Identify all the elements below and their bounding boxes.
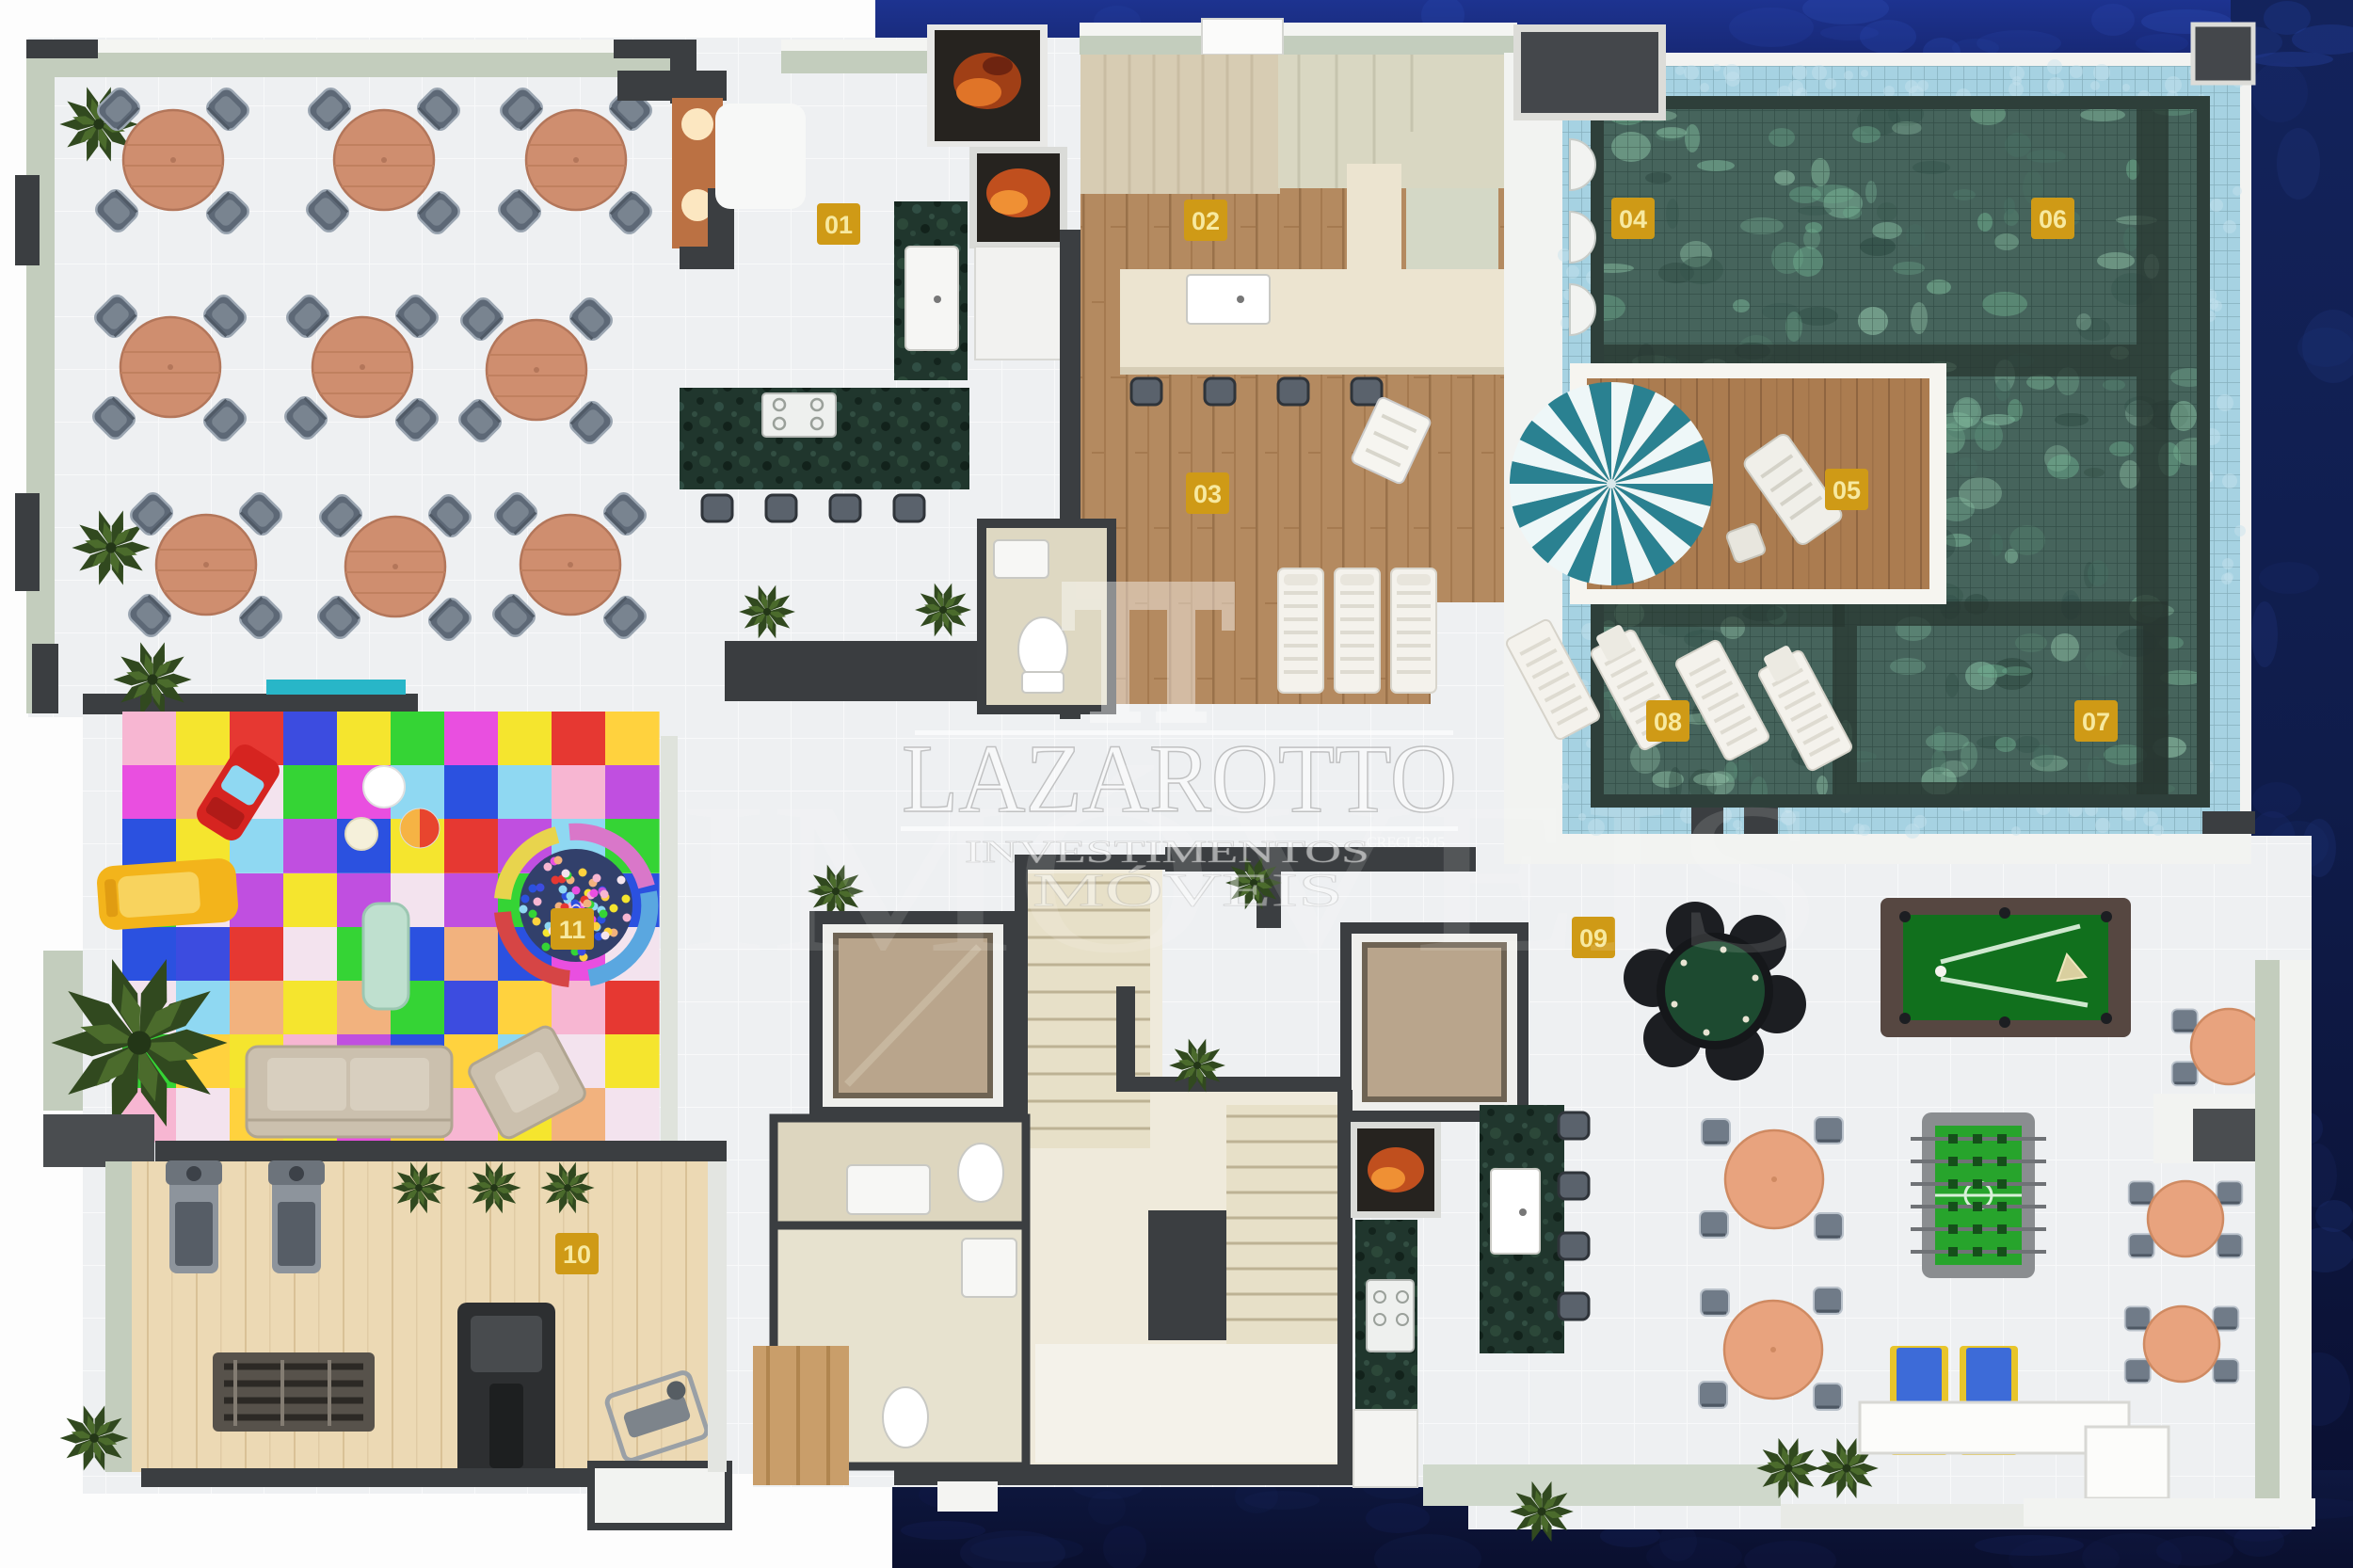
svg-text:10: 10	[563, 1240, 591, 1269]
svg-text:11: 11	[559, 916, 586, 944]
svg-text:01: 01	[824, 211, 853, 239]
svg-text:04: 04	[1619, 205, 1647, 233]
svg-text:08: 08	[1654, 708, 1682, 736]
svg-text:05: 05	[1833, 476, 1861, 504]
svg-text:06: 06	[2039, 205, 2067, 233]
svg-text:IMÓVEIS: IMÓVEIS	[678, 758, 1826, 998]
svg-text:07: 07	[2082, 708, 2110, 736]
svg-text:03: 03	[1193, 480, 1222, 508]
svg-text:02: 02	[1192, 207, 1220, 235]
